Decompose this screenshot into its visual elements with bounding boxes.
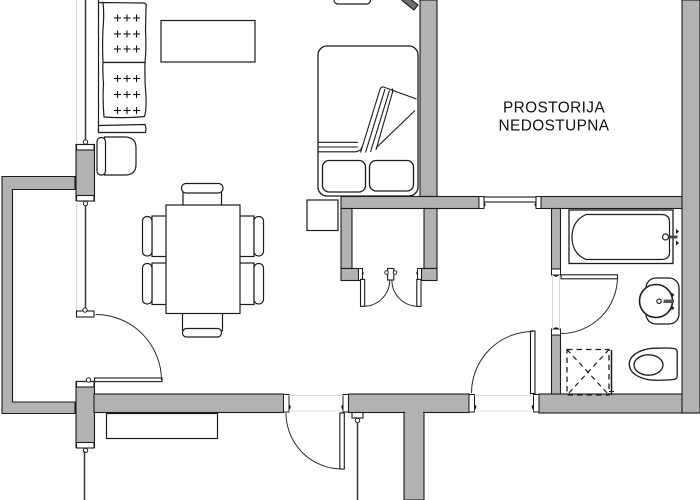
svg-text:PROSTORIJA: PROSTORIJA — [503, 100, 605, 117]
svg-text:NEDOSTUPNA: NEDOSTUPNA — [499, 118, 610, 135]
